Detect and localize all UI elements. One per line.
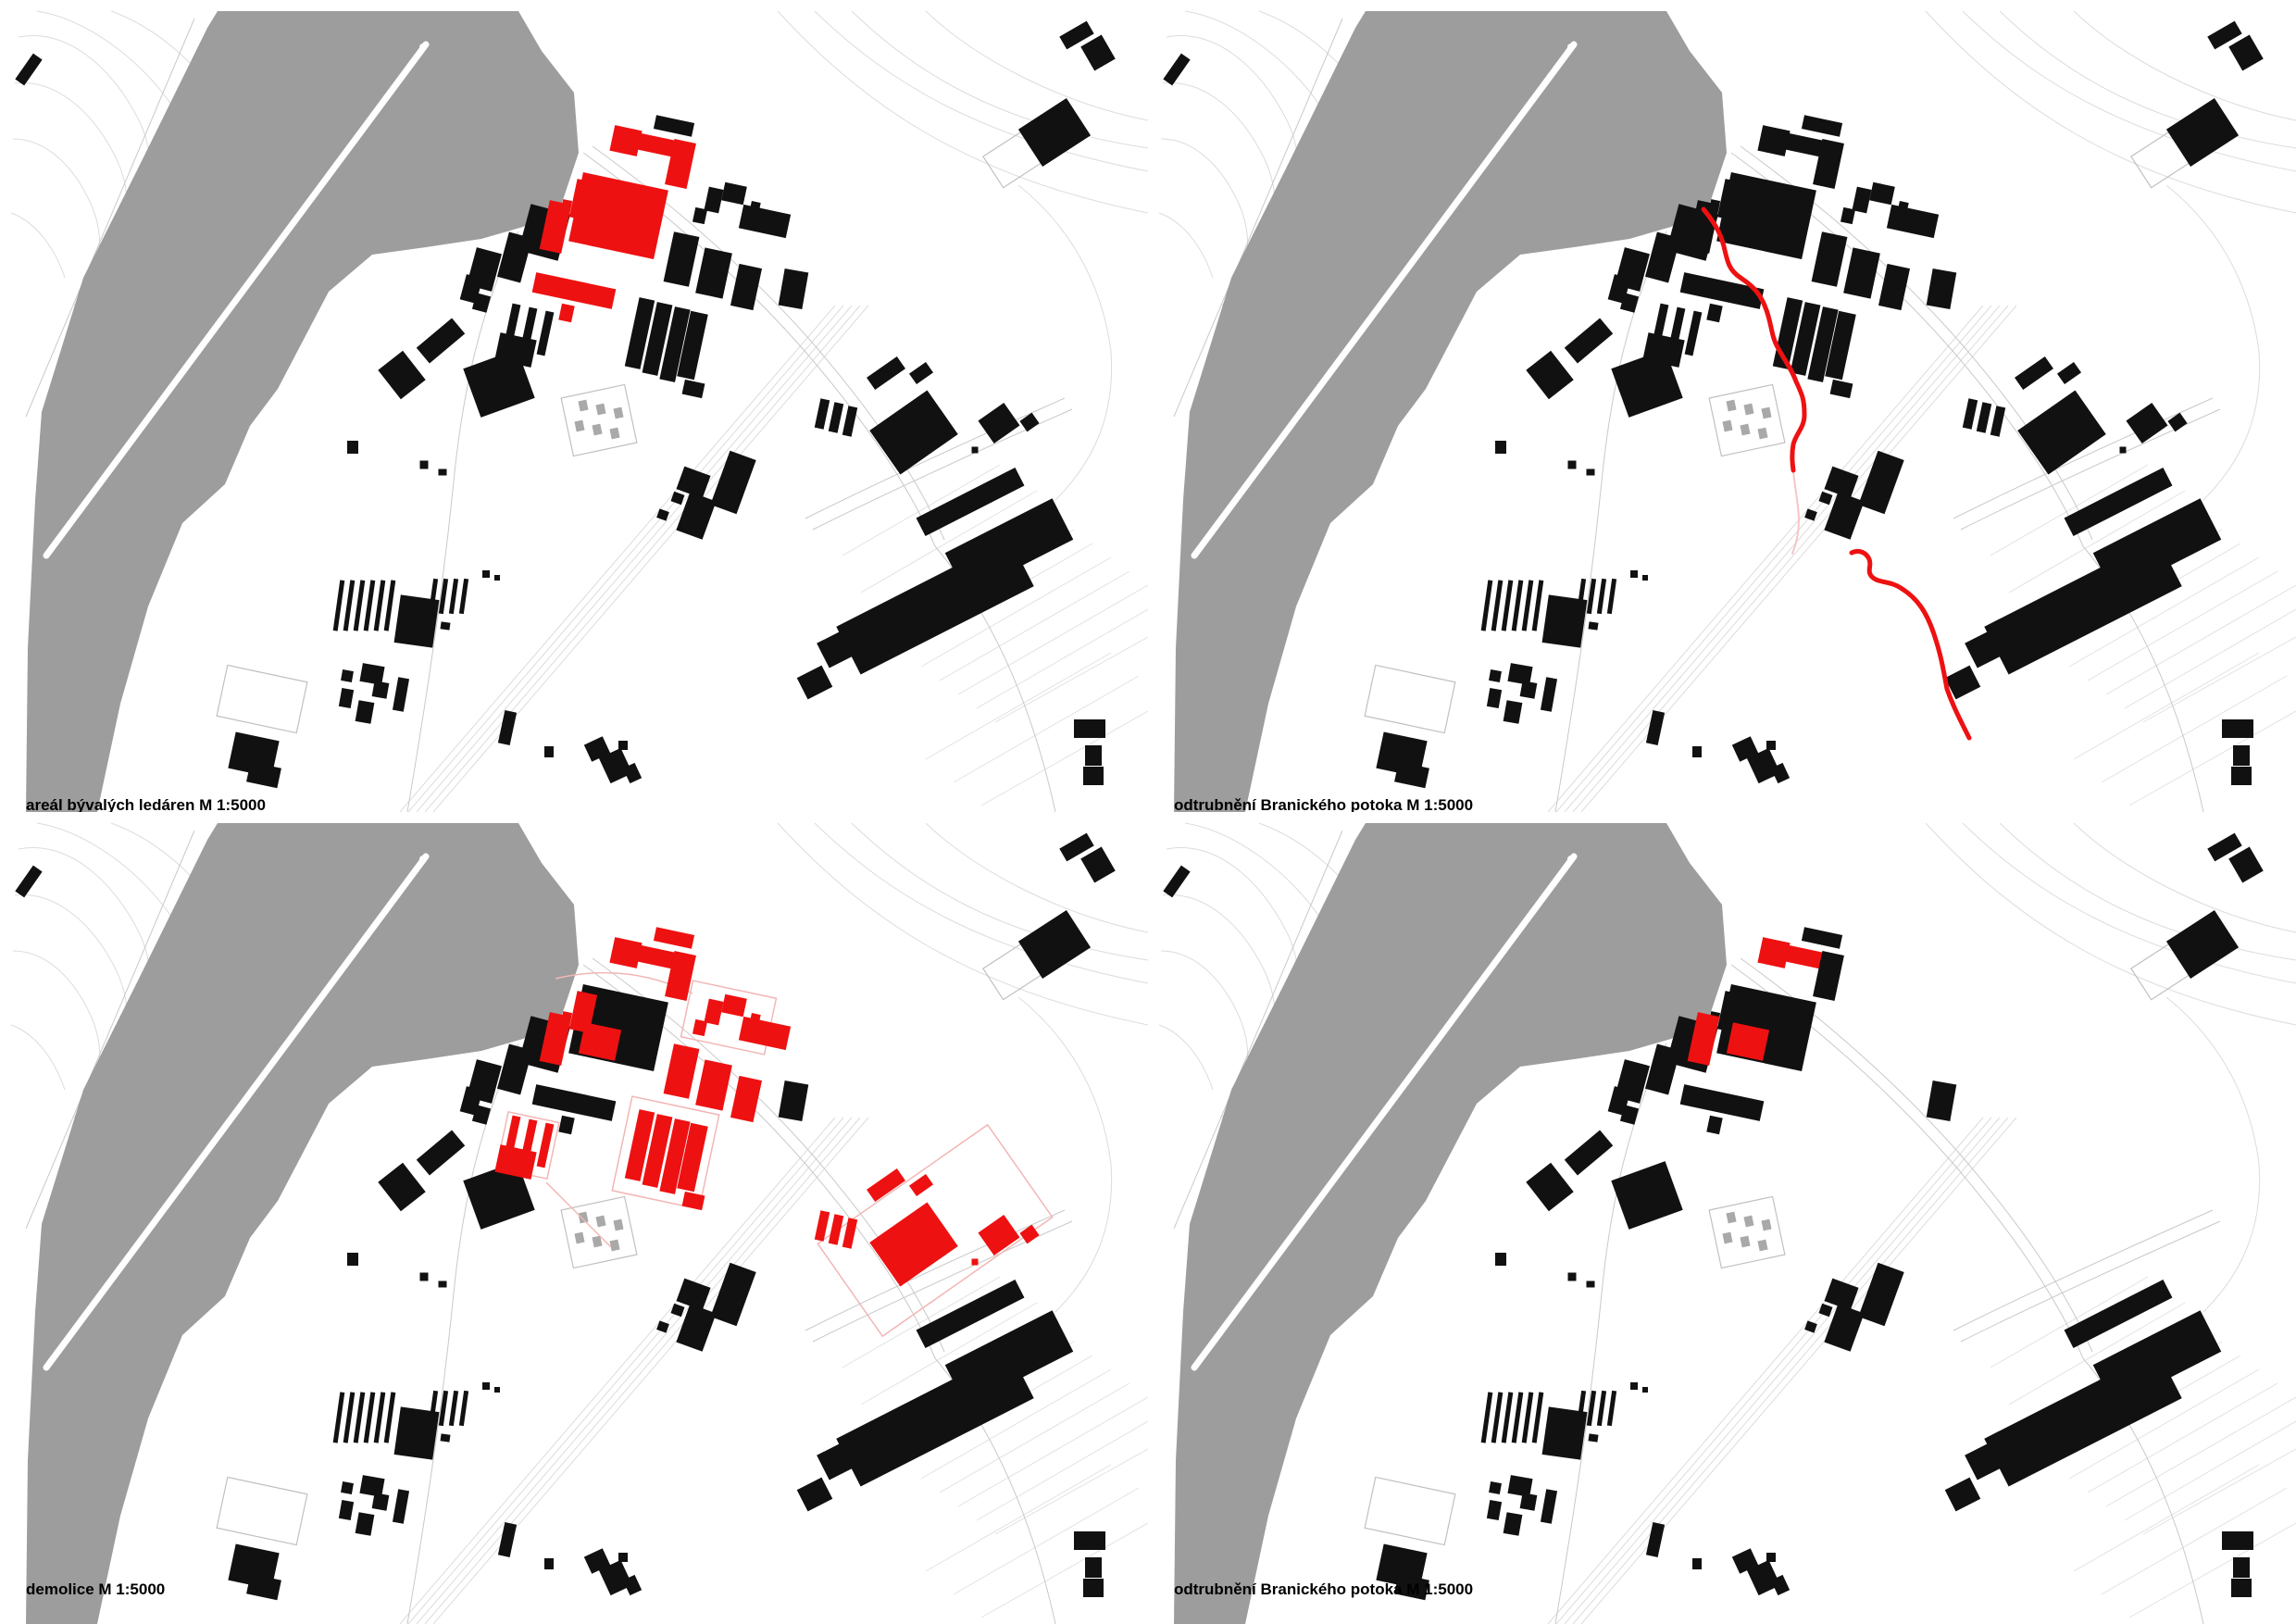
caption-demolition: demolice M 1:5000 [26,1580,165,1599]
panel-demolition: demolice M 1:5000 [0,812,1148,1624]
caption-stream-after: odtrubnění Branického potoka M 1:5000 [1174,1580,1473,1599]
site-plan-map-ice-works [0,0,1148,812]
panel-existing-ice-works: areál bývalých ledáren M 1:5000 [0,0,1148,812]
panel-stream-daylighting-before: odtrubnění Branického potoka M 1:5000 [1148,0,2296,812]
panel-stream-daylighting-after: odtrubnění Branického potoka M 1:5000 [1148,812,2296,1624]
site-plan-map-stream-before [1148,0,2296,812]
site-plan-map-stream-after [1148,812,2296,1624]
site-plan-map-demolition [0,812,1148,1624]
drawing-sheet: areál bývalých ledáren M 1:5000 odtrubně… [0,0,2296,1624]
